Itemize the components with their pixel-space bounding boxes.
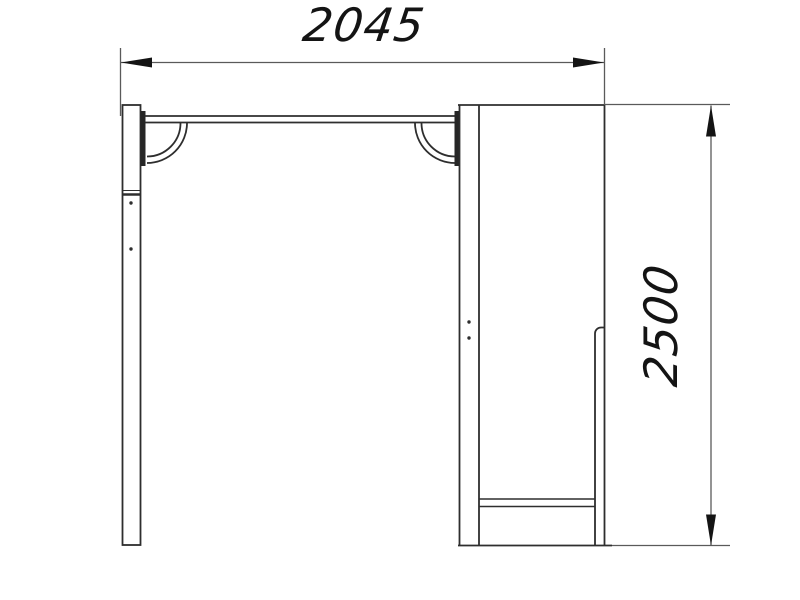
tower-bolt-dot-1 — [467, 320, 470, 323]
left-post-bolt-dot-1 — [129, 201, 132, 204]
arrow-up-icon — [706, 106, 716, 137]
arrow-right-icon — [573, 58, 604, 68]
tower — [455, 105, 613, 546]
tower-bolt-dot-2 — [467, 336, 470, 339]
right-bracket-outer-arc — [415, 123, 455, 163]
arrow-left-icon — [121, 58, 152, 68]
left-bracket-outer-arc — [147, 123, 187, 163]
left-post — [123, 105, 146, 545]
tower-side-panel-rounded-edge — [595, 328, 605, 546]
arrow-down-icon — [706, 515, 716, 546]
structure — [123, 105, 613, 546]
left-post-bolt-dot-2 — [129, 247, 132, 250]
height-dimension-label: 2500 — [637, 222, 685, 429]
technical-drawing-canvas: 2045 2500 — [0, 0, 800, 600]
left-bracket — [147, 123, 187, 163]
right-bracket — [415, 123, 455, 163]
swing-beam — [145, 116, 456, 123]
left-post-outline — [123, 105, 141, 545]
width-dimension-label: 2045 — [261, 1, 468, 49]
left-bracket-plate — [141, 111, 146, 166]
